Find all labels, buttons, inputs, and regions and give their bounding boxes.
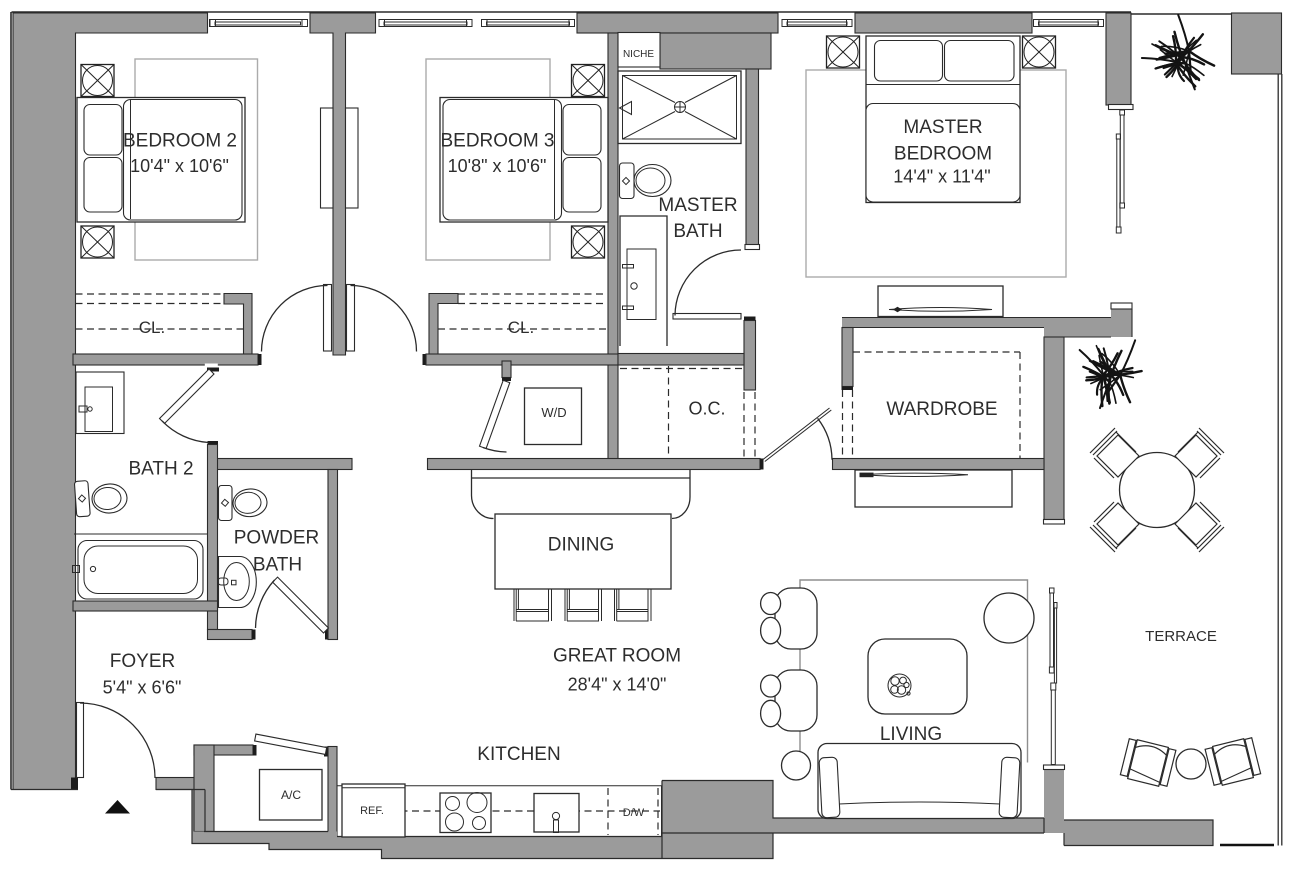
svg-text:A/C: A/C (281, 788, 301, 802)
svg-text:28'4" x 14'0": 28'4" x 14'0" (568, 675, 667, 695)
svg-text:REF.: REF. (360, 805, 384, 817)
svg-text:TERRACE: TERRACE (1145, 628, 1217, 645)
svg-text:BEDROOM 2: BEDROOM 2 (123, 131, 237, 152)
svg-text:DINING: DINING (548, 535, 615, 556)
svg-text:BATH: BATH (673, 221, 722, 242)
svg-text:BATH: BATH (253, 555, 302, 576)
svg-text:KITCHEN: KITCHEN (477, 744, 560, 765)
svg-text:BEDROOM: BEDROOM (894, 144, 992, 165)
svg-text:POWDER: POWDER (234, 528, 320, 549)
svg-text:CL.: CL. (139, 318, 165, 337)
svg-text:5'4" x 6'6": 5'4" x 6'6" (103, 678, 182, 698)
svg-text:NICHE: NICHE (623, 49, 654, 60)
svg-text:BEDROOM 3: BEDROOM 3 (440, 131, 554, 152)
svg-text:MASTER: MASTER (658, 195, 737, 216)
svg-text:WARDROBE: WARDROBE (886, 399, 997, 420)
svg-text:D/W: D/W (623, 807, 645, 819)
svg-text:LIVING: LIVING (880, 724, 942, 745)
svg-text:CL.: CL. (508, 318, 534, 337)
svg-text:W/D: W/D (541, 405, 566, 420)
svg-text:MASTER: MASTER (903, 117, 982, 138)
svg-text:O.C.: O.C. (688, 399, 725, 419)
svg-text:10'8" x 10'6": 10'8" x 10'6" (448, 156, 547, 176)
svg-text:GREAT ROOM: GREAT ROOM (553, 646, 681, 667)
svg-text:14'4" x 11'4": 14'4" x 11'4" (893, 167, 990, 187)
svg-text:BATH 2: BATH 2 (128, 459, 193, 480)
svg-text:10'4" x 10'6": 10'4" x 10'6" (130, 156, 229, 176)
svg-text:FOYER: FOYER (110, 651, 175, 672)
